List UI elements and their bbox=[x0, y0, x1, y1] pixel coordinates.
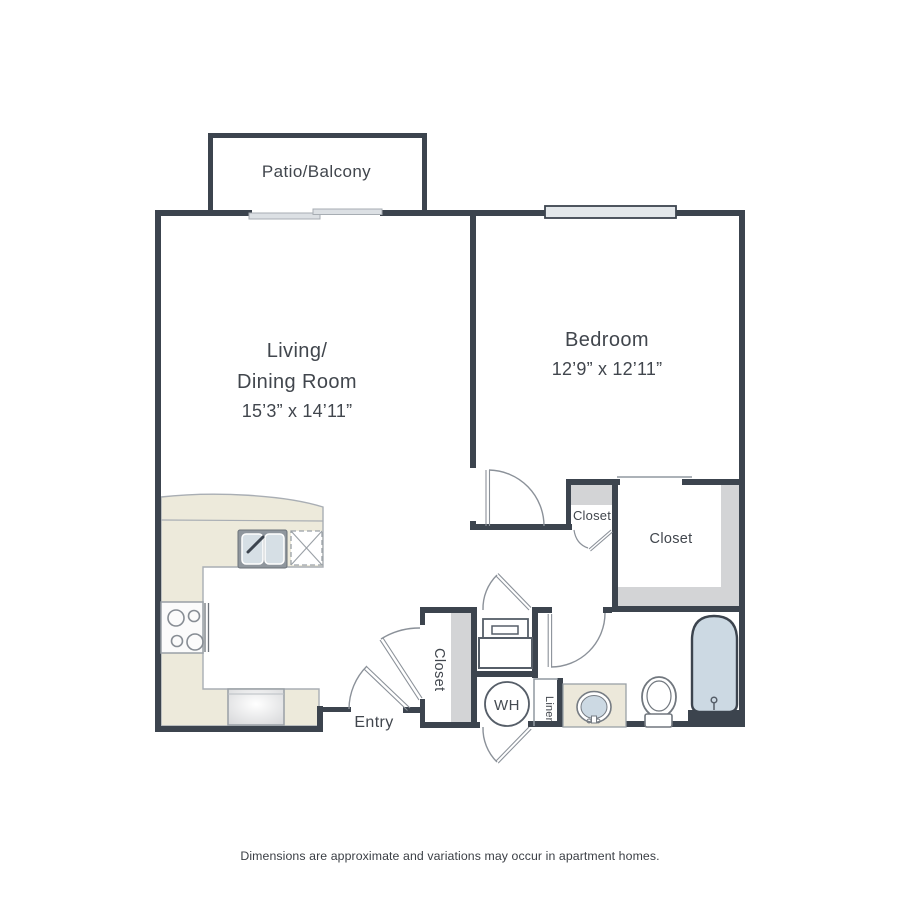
dishwasher-dashed-box bbox=[291, 531, 322, 565]
faucet-icon bbox=[592, 716, 597, 723]
wh-access-door bbox=[483, 727, 531, 763]
walkin-closet-shading-bottom bbox=[618, 587, 721, 606]
patio-sliding-door bbox=[249, 209, 382, 219]
hall-closet-shading bbox=[451, 613, 471, 727]
bedroom-closet-label: Closet bbox=[566, 506, 618, 526]
bedroom-dimensions: 12’9” x 12’11” bbox=[482, 356, 732, 384]
linen-closet-label: Linen bbox=[540, 692, 557, 728]
bedroom-label: Bedroom 12’9” x 12’11” bbox=[482, 325, 732, 384]
bathroom-door bbox=[548, 613, 605, 667]
entry-label: Entry bbox=[344, 711, 404, 736]
hall-closet-label: Closet bbox=[428, 641, 450, 699]
disclaimer-text: Dimensions are approximate and variation… bbox=[0, 849, 900, 863]
stove bbox=[161, 602, 209, 653]
bathtub bbox=[692, 616, 737, 712]
floor-plan-drawing: WH bbox=[0, 0, 900, 900]
bedroom-door bbox=[486, 470, 544, 526]
utility-closet-door bbox=[483, 574, 531, 611]
living-room-name-line1: Living/ bbox=[172, 336, 422, 367]
floor-plan: WH bbox=[0, 0, 900, 900]
walkin-closet-shading-right bbox=[721, 485, 739, 606]
living-room-name-line2: Dining Room bbox=[172, 367, 422, 398]
walls bbox=[155, 133, 745, 732]
washer-dryer bbox=[479, 619, 532, 668]
patio-wall-top bbox=[208, 133, 427, 138]
walkin-closet-label: Closet bbox=[621, 528, 721, 550]
bedroom-name: Bedroom bbox=[482, 325, 732, 356]
bedroom-closet-shading bbox=[571, 485, 612, 505]
vanity-sink bbox=[563, 684, 626, 727]
water-heater-label: WH bbox=[494, 697, 520, 714]
living-room-label: Living/ Dining Room 15’3” x 14’11” bbox=[172, 336, 422, 426]
toilet bbox=[642, 677, 676, 727]
bedroom-window bbox=[545, 206, 676, 218]
bifold-closet-door bbox=[574, 530, 613, 551]
double-sink bbox=[238, 530, 287, 568]
water-heater: WH bbox=[485, 682, 529, 726]
living-room-dimensions: 15’3” x 14’11” bbox=[172, 398, 422, 426]
patio-balcony-label: Patio/Balcony bbox=[210, 159, 423, 185]
refrigerator bbox=[228, 689, 284, 725]
hall-closet-door bbox=[380, 628, 422, 700]
